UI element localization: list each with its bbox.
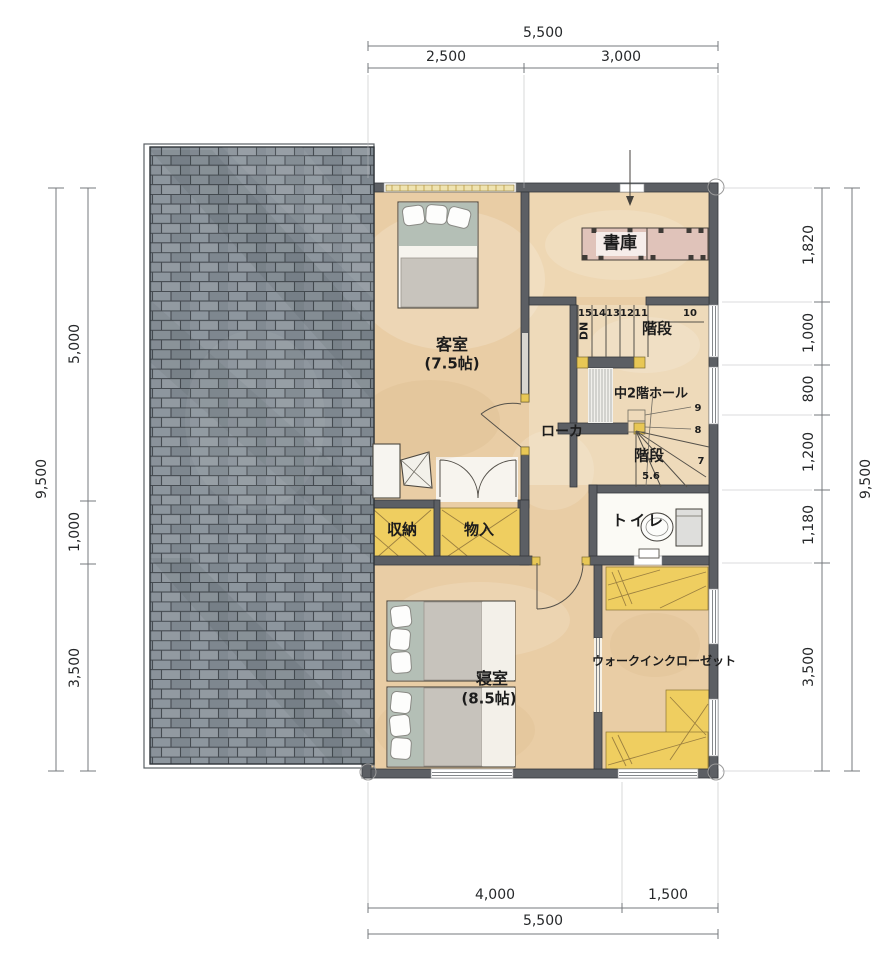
stair-number-7: 7 bbox=[698, 457, 705, 467]
floor-plan-drawing bbox=[0, 0, 886, 960]
stairs-upper-label: 階段 bbox=[642, 322, 672, 337]
dim-right-seg6: 3,500 bbox=[802, 647, 816, 687]
bedroom-size-label: (8.5帖) bbox=[461, 692, 516, 707]
stair-number-12: 12 bbox=[620, 309, 634, 319]
dim-bottom-seg1: 4,000 bbox=[475, 888, 515, 902]
stair-number-15: 15 bbox=[578, 309, 592, 319]
stair-number-13: 13 bbox=[606, 309, 620, 319]
dim-top-overall: 5,500 bbox=[523, 26, 563, 40]
library-label: 書庫 bbox=[603, 236, 637, 253]
stair-number-5-6: 5.6 bbox=[642, 472, 660, 482]
closet-label: 物入 bbox=[464, 523, 494, 538]
stair-number-8: 8 bbox=[695, 426, 702, 436]
bookshelf bbox=[582, 228, 708, 260]
walk-in-closet-label: ウォークインクローゼット bbox=[592, 655, 736, 667]
dim-right-overall: 9,500 bbox=[859, 459, 873, 499]
dim-left-overall: 9,500 bbox=[35, 459, 49, 499]
dim-right-seg4: 1,200 bbox=[802, 432, 816, 472]
dim-right-seg2: 1,000 bbox=[802, 313, 816, 353]
dim-top-seg2: 3,000 bbox=[601, 50, 641, 64]
mezzanine-hall-label: 中2階ホール bbox=[614, 388, 688, 401]
toilet-label: トイレ bbox=[612, 514, 666, 529]
stair-number-9: 9 bbox=[695, 404, 702, 414]
stair-number-11: 11 bbox=[634, 309, 648, 319]
dim-bottom-overall: 5,500 bbox=[523, 914, 563, 928]
dim-left-seg3: 3,500 bbox=[68, 648, 82, 688]
storage-label: 収納 bbox=[387, 523, 417, 538]
guest-room-label: 客室 bbox=[436, 337, 468, 353]
corridor-label: ローカ bbox=[541, 425, 583, 439]
guest-bed bbox=[398, 202, 478, 308]
stair-number-14: 14 bbox=[592, 309, 606, 319]
dim-right-seg5: 1,180 bbox=[802, 505, 816, 545]
floor-plan: 5,500 2,500 3,000 4,000 1,500 5,500 5,00… bbox=[0, 0, 886, 960]
down-label: DN bbox=[579, 322, 590, 340]
dim-top-seg1: 2,500 bbox=[426, 50, 466, 64]
roof bbox=[144, 144, 374, 768]
stair-number-10: 10 bbox=[683, 309, 697, 319]
dim-bottom-seg2: 1,500 bbox=[648, 888, 688, 902]
dim-left-seg2: 1,000 bbox=[68, 512, 82, 552]
guest-room-size-label: (7.5帖) bbox=[424, 357, 479, 372]
bedroom-label: 寝室 bbox=[476, 671, 508, 687]
stairs-lower-label: 階段 bbox=[634, 449, 664, 464]
dim-left-seg1: 5,000 bbox=[68, 324, 82, 364]
dim-right-seg1: 1,820 bbox=[802, 225, 816, 265]
dim-right-seg3: 800 bbox=[802, 376, 816, 403]
